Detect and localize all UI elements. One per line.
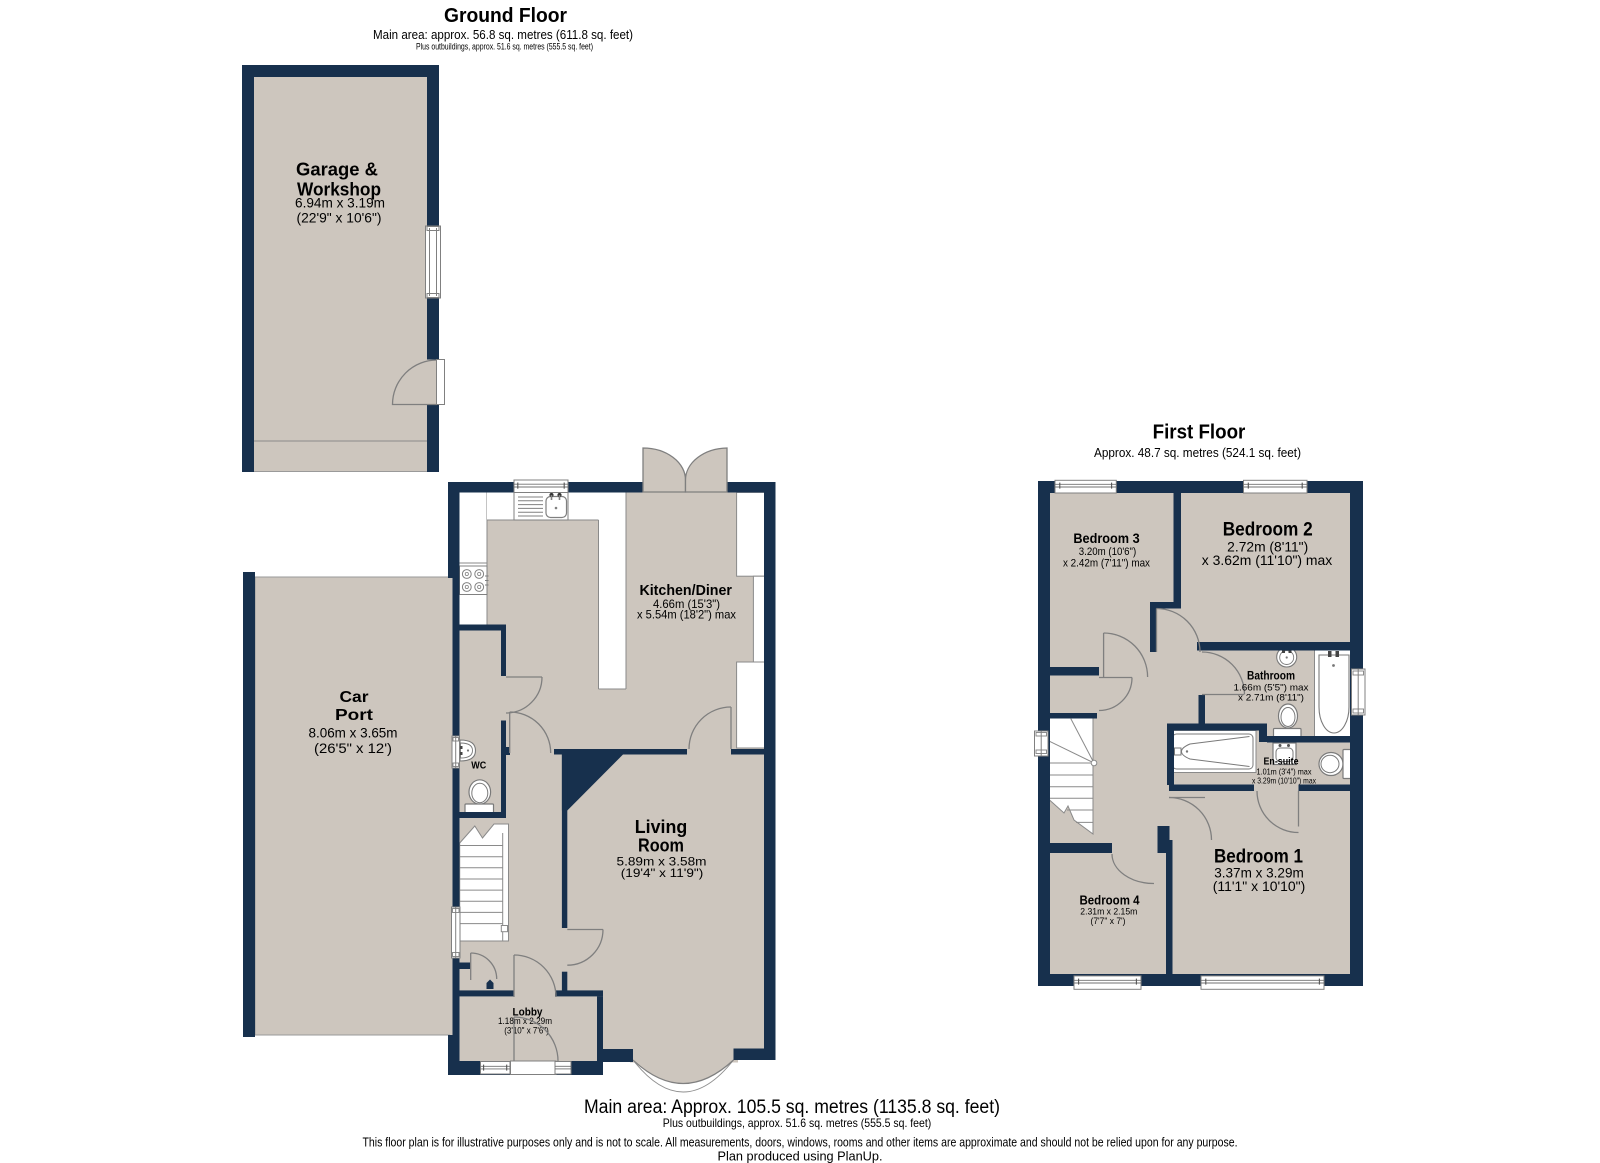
svg-text:x 3.62m (11'10") max: x 3.62m (11'10") max bbox=[1202, 553, 1333, 568]
svg-text:Plus outbuildings, approx. 51.: Plus outbuildings, approx. 51.6 sq. metr… bbox=[416, 42, 593, 52]
svg-text:x 3.29m (10'10") max: x 3.29m (10'10") max bbox=[1252, 776, 1317, 786]
svg-text:6.94m x 3.19m: 6.94m x 3.19m bbox=[295, 195, 385, 211]
svg-text:(11'1" x 10'10"): (11'1" x 10'10") bbox=[1213, 879, 1306, 894]
svg-text:Room: Room bbox=[638, 835, 684, 856]
svg-text:This floor plan is for illustr: This floor plan is for illustrative purp… bbox=[363, 1136, 1238, 1150]
svg-text:(19'4" x 11'9"): (19'4" x 11'9") bbox=[621, 866, 704, 880]
svg-text:Bedroom 3: Bedroom 3 bbox=[1073, 530, 1139, 546]
svg-text:3.20m (10'6"): 3.20m (10'6") bbox=[1079, 546, 1136, 558]
svg-text:Bathroom: Bathroom bbox=[1247, 671, 1295, 683]
svg-text:WC: WC bbox=[471, 761, 486, 772]
svg-text:Garage &: Garage & bbox=[296, 159, 378, 180]
svg-text:x 2.71m (8'11"): x 2.71m (8'11") bbox=[1238, 693, 1304, 704]
svg-text:1.18m x 2.29m: 1.18m x 2.29m bbox=[498, 1016, 552, 1026]
svg-text:8.06m x 3.65m: 8.06m x 3.65m bbox=[309, 725, 398, 741]
svg-text:x 5.54m (18'2") max: x 5.54m (18'2") max bbox=[637, 608, 736, 622]
svg-text:Main area: Approx. 105.5 sq. m: Main area: Approx. 105.5 sq. metres (113… bbox=[584, 1097, 1000, 1118]
svg-text:Plan produced using PlanUp.: Plan produced using PlanUp. bbox=[718, 1150, 883, 1163]
svg-text:Approx. 48.7 sq. metres (524.1: Approx. 48.7 sq. metres (524.1 sq. feet) bbox=[1094, 446, 1301, 460]
svg-text:Ground Floor: Ground Floor bbox=[444, 5, 567, 27]
svg-text:Plus outbuildings, approx. 51.: Plus outbuildings, approx. 51.6 sq. metr… bbox=[663, 1116, 932, 1130]
svg-text:Bedroom 2: Bedroom 2 bbox=[1223, 519, 1313, 541]
svg-text:Port: Port bbox=[335, 707, 373, 724]
svg-text:Bedroom 4: Bedroom 4 bbox=[1080, 894, 1140, 908]
svg-text:Main area: approx. 56.8 sq. me: Main area: approx. 56.8 sq. metres (611.… bbox=[373, 28, 633, 42]
svg-text:x 2.42m (7'11") max: x 2.42m (7'11") max bbox=[1063, 558, 1150, 570]
svg-text:Car: Car bbox=[340, 689, 369, 706]
svg-text:(7'7" x 7'): (7'7" x 7') bbox=[1091, 916, 1126, 927]
svg-text:(26'5" x 12'): (26'5" x 12') bbox=[314, 740, 392, 756]
svg-text:First Floor: First Floor bbox=[1153, 422, 1246, 444]
svg-text:(22'9" x 10'6"): (22'9" x 10'6") bbox=[297, 210, 382, 226]
svg-text:Bedroom 1: Bedroom 1 bbox=[1214, 846, 1303, 868]
